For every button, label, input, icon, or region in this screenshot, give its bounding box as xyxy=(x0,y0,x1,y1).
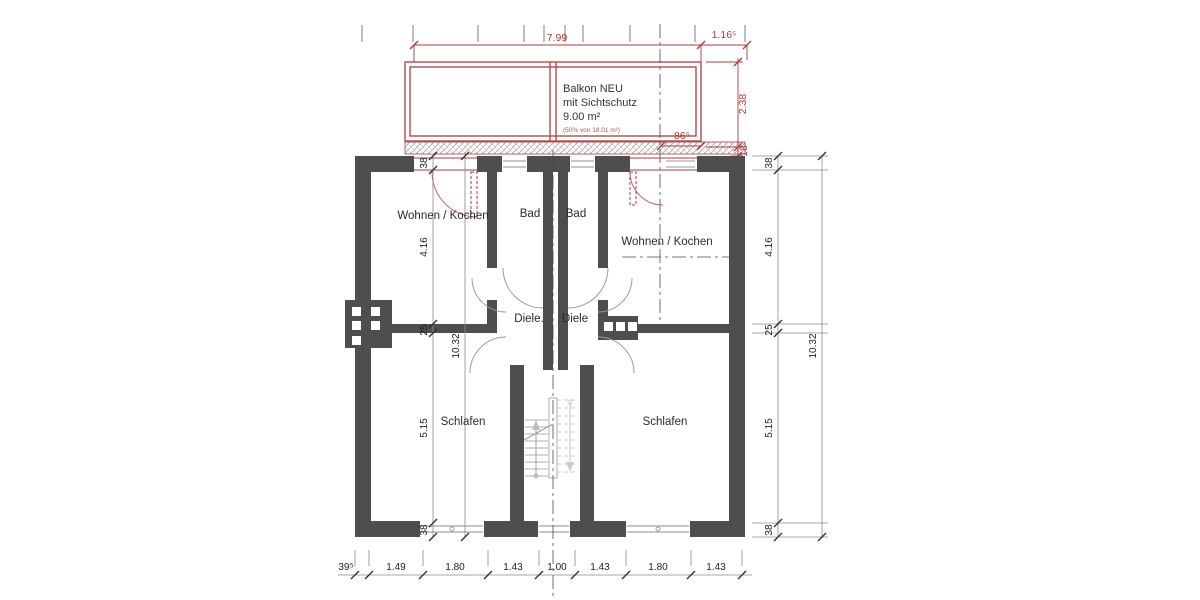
room-label-hall-left: Diele. xyxy=(514,313,543,325)
room-labels: Wohnen / Kochen Bad Bad Wohnen / Kochen … xyxy=(397,208,712,428)
wall-mid-left xyxy=(390,324,497,333)
room-label-bath-right: Bad xyxy=(566,208,586,220)
dim-balcony-slab: 18 xyxy=(738,145,750,157)
dim-right-total: 10.32 xyxy=(808,333,819,358)
room-label-hall-right: Diele xyxy=(562,313,588,325)
room-label-bedroom-left: Schlafen xyxy=(441,416,486,428)
dim-bottom-3: 1.43 xyxy=(503,562,523,573)
room-label-bedroom-right: Schlafen xyxy=(643,416,688,428)
wall-exterior-right xyxy=(729,156,745,537)
balcony-inner-rail xyxy=(410,67,696,136)
balcony-annotation: Balkon NEU mit Sichtschutz 9.00 m² (50% … xyxy=(563,83,637,134)
dim-right-38-top: 38 xyxy=(764,157,775,169)
dim-left-38-bottom: 38 xyxy=(419,524,430,536)
dim-bottom-0: 39⁵ xyxy=(338,562,353,573)
window-bedroom-right xyxy=(626,521,690,537)
room-label-living-right: Wohnen / Kochen xyxy=(621,236,712,248)
dim-right-38-bottom: 38 xyxy=(764,524,775,536)
chimney-left xyxy=(345,300,392,348)
dim-balcony-depth: 2.38 xyxy=(737,94,749,115)
wall-stair-right xyxy=(580,365,594,521)
dim-bottom-1: 1.49 xyxy=(386,562,406,573)
dim-right-25: 25 xyxy=(764,324,775,336)
wall-mid-right xyxy=(637,324,729,333)
door-swing-bath-left xyxy=(503,268,543,308)
dim-balcony-side: 1.16⁵ xyxy=(712,29,737,41)
dim-bottom-6: 1.80 xyxy=(648,562,668,573)
staircase xyxy=(524,398,579,478)
balcony-note: (50% von 18.01 m²) xyxy=(563,127,620,134)
balcony-outer-rail xyxy=(405,62,701,141)
dim-left-25: 25 xyxy=(419,324,430,336)
room-label-bath-left: Bad xyxy=(520,208,540,220)
dim-balcony-width: 7.99 xyxy=(547,32,568,44)
dim-bottom-2: 1.80 xyxy=(445,562,465,573)
dim-left-416: 4.16 xyxy=(419,237,430,257)
dim-door-offset: 86⁵ xyxy=(674,130,690,142)
dim-bottom-4: 1.00 xyxy=(547,562,567,573)
dim-left-38-top: 38 xyxy=(419,157,430,169)
balcony-subtitle: mit Sichtschutz xyxy=(563,97,637,109)
dim-bottom-7: 1.43 xyxy=(706,562,726,573)
wall-party-left xyxy=(543,172,553,370)
window-stairwell xyxy=(538,521,570,537)
window-bath-left xyxy=(502,156,527,172)
dim-bottom-5: 1.43 xyxy=(590,562,610,573)
room-label-living-left: Wohnen / Kochen xyxy=(397,210,488,222)
dim-left-total: 10.32 xyxy=(451,333,462,358)
floor-plan-canvas: 7.99 1.16⁵ 2.38 18 86⁵ xyxy=(0,0,1200,600)
balcony-slab-hatch xyxy=(405,142,745,154)
balcony-area: 9.00 m² xyxy=(563,111,601,123)
chimney-right xyxy=(598,316,638,340)
dim-left-515: 5.15 xyxy=(419,418,430,438)
wall-stair-left xyxy=(510,365,524,521)
balcony-title: Balkon NEU xyxy=(563,83,623,95)
door-swing-balcony-right xyxy=(630,172,663,205)
window-bath-right xyxy=(570,156,595,172)
door-swing-bedroom-right xyxy=(598,337,634,373)
wall-party-right xyxy=(558,172,568,370)
door-leaf-balcony-right xyxy=(630,172,636,205)
floor-plan-drawing: 7.99 1.16⁵ 2.38 18 86⁵ xyxy=(0,0,1200,600)
stair-down-arrow xyxy=(566,400,574,472)
dim-right-515: 5.15 xyxy=(764,418,775,438)
dim-right-416: 4.16 xyxy=(764,237,775,257)
door-swing-bedroom-left xyxy=(470,337,506,373)
wall-bath-right xyxy=(598,172,608,268)
